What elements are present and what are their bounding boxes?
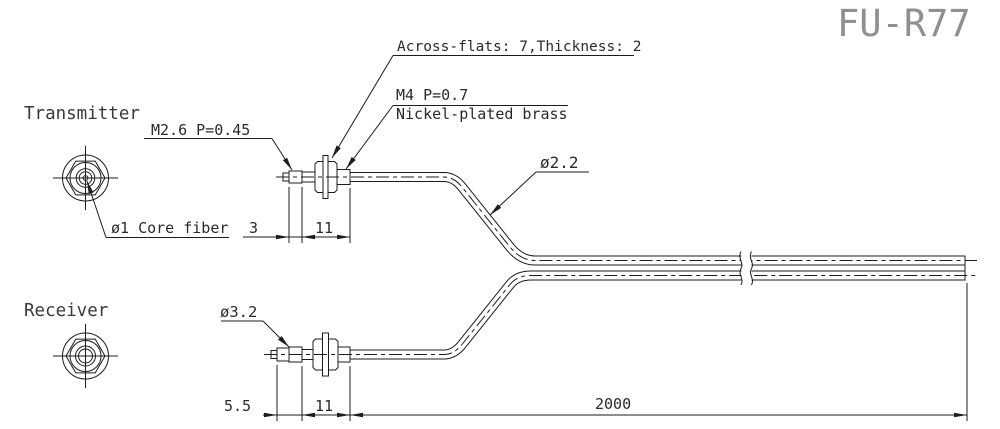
receiver-label: Receiver — [24, 301, 108, 321]
dim-receiver-body-length: 11 — [315, 397, 333, 415]
transmitter-end-view — [53, 146, 118, 210]
transmitter-dimensions — [243, 187, 350, 243]
callout-m26-thread: M2.6 P=0.45 — [151, 121, 250, 139]
dim-transmitter-tip-length: 3 — [249, 219, 258, 237]
dim-receiver-tip-length: 5.5 — [224, 397, 251, 415]
dim-cable-length: 2000 — [595, 395, 631, 413]
centerlines — [264, 177, 977, 355]
leader-cable-diameter — [490, 172, 589, 215]
callout-m4-thread: M4 P=0.7 — [396, 86, 468, 104]
cable-y-assembly — [350, 177, 965, 355]
fiber-unit-drawing: FU-R77 Transmitter Receiver Across-flats… — [0, 0, 1000, 429]
leader-m26-thread — [144, 139, 292, 171]
technical-drawing-page: FU-R77 Transmitter Receiver Across-flats… — [0, 0, 1000, 429]
callout-material: Nickel-plated brass — [396, 105, 568, 123]
cable-break-symbol — [740, 250, 753, 287]
leader-receiver-fiber-diameter — [221, 321, 289, 347]
callout-receiver-fiber-diameter: ø3.2 — [220, 303, 257, 321]
callout-cable-diameter: ø2.2 — [540, 153, 579, 172]
drawing-title: FU-R77 — [837, 2, 971, 45]
transmitter-label: Transmitter — [24, 104, 140, 124]
dim-transmitter-body-length: 11 — [315, 219, 333, 237]
callout-across-flats: Across-flats: 7,Thickness: 2 — [397, 39, 641, 55]
receiver-end-view — [53, 324, 118, 388]
callout-core-fiber: ø1 Core fiber — [111, 219, 228, 237]
